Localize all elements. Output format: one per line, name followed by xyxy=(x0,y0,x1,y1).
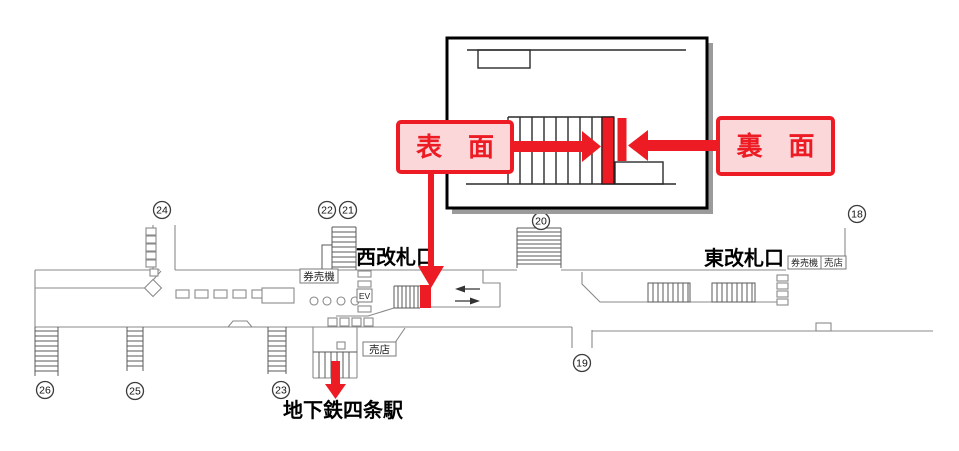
exit-marker-21: 21 xyxy=(340,202,357,219)
ticket-machine-west: 券売機 xyxy=(300,269,338,283)
kiosk-center: 売店 xyxy=(363,342,396,356)
booth-box xyxy=(262,288,294,303)
exit-marker-19: 19 xyxy=(574,355,591,372)
west-gate-label: 西改札口 xyxy=(356,245,436,269)
back-face-marker xyxy=(618,118,627,161)
ticket-machine-west-label: 券売機 xyxy=(303,270,335,283)
ad-location-marker xyxy=(420,285,431,308)
stair-exit-26 xyxy=(35,327,58,376)
kiosk-center-label: 売店 xyxy=(369,343,390,356)
svg-text:22: 22 xyxy=(321,205,333,217)
escalator-end-marker xyxy=(145,280,162,297)
svg-text:21: 21 xyxy=(342,205,354,217)
exit-marker-22: 22 xyxy=(319,202,336,219)
facility-labels: 券売機 券売機 売店 売店 EV xyxy=(300,256,846,356)
stair-exit-21-22 xyxy=(322,227,356,270)
svg-text:18: 18 xyxy=(851,209,863,221)
flow-right-arrow-icon xyxy=(455,298,480,305)
svg-text:20: 20 xyxy=(535,216,547,228)
elevator: EV xyxy=(357,289,372,302)
east-gate-label: 東改札口 xyxy=(704,246,784,270)
stair-top-box xyxy=(337,342,345,349)
exit-marker-18: 18 xyxy=(849,206,866,223)
front-side-label: 表 面 xyxy=(416,132,494,162)
exit-marker-25: 25 xyxy=(127,383,144,400)
wall-recess xyxy=(816,323,831,331)
svg-text:19: 19 xyxy=(576,358,588,370)
exit-marker-26: 26 xyxy=(37,382,54,399)
station-map: 券売機 券売機 売店 売店 EV 西改札口 東改札口 地下鉄四条駅 xyxy=(35,202,933,423)
ticket-machine-east-label: 券売機 xyxy=(791,257,818,268)
bench-marker xyxy=(228,321,252,327)
fare-gate-column-east xyxy=(777,275,788,305)
svg-text:24: 24 xyxy=(156,205,168,217)
exit-marker-24: 24 xyxy=(154,202,171,219)
exit-marker-20: 20 xyxy=(533,213,550,230)
back-side-label: 裏 面 xyxy=(736,131,814,161)
stair-east-1 xyxy=(648,283,690,302)
svg-text:26: 26 xyxy=(39,385,51,397)
stair-exit-25 xyxy=(127,327,143,371)
flow-left-arrow-icon xyxy=(455,286,480,293)
svg-text:25: 25 xyxy=(129,386,141,398)
elevator-label: EV xyxy=(359,291,371,301)
kiosk-east: 売店 xyxy=(821,256,846,269)
exit-markers: 18 19 20 21 22 23 24 25 26 xyxy=(37,202,866,400)
stair-exit-20 xyxy=(517,228,561,268)
stair-west-gate xyxy=(394,286,420,308)
kiosk-east-label: 売店 xyxy=(824,257,843,269)
stair-exit-23 xyxy=(268,327,286,374)
fare-gate-row-west xyxy=(176,290,265,298)
fare-gate-row-center xyxy=(328,318,373,326)
subway-station-label: 地下鉄四条駅 xyxy=(283,398,403,422)
concourse-walls xyxy=(35,225,933,378)
svg-text:23: 23 xyxy=(275,385,287,397)
front-face-marker xyxy=(602,117,614,184)
connector-arrow-icon xyxy=(418,170,444,288)
exit24-escalator-segments xyxy=(146,228,158,276)
stair-east-2 xyxy=(712,283,755,302)
ticket-machine-east: 券売機 xyxy=(788,256,821,269)
pillar-circles xyxy=(310,297,359,305)
flow-arrows xyxy=(455,286,480,305)
exit-marker-23: 23 xyxy=(273,382,290,399)
station-area-diagram: 券売機 券売機 売店 売店 EV 西改札口 東改札口 地下鉄四条駅 xyxy=(0,0,959,451)
